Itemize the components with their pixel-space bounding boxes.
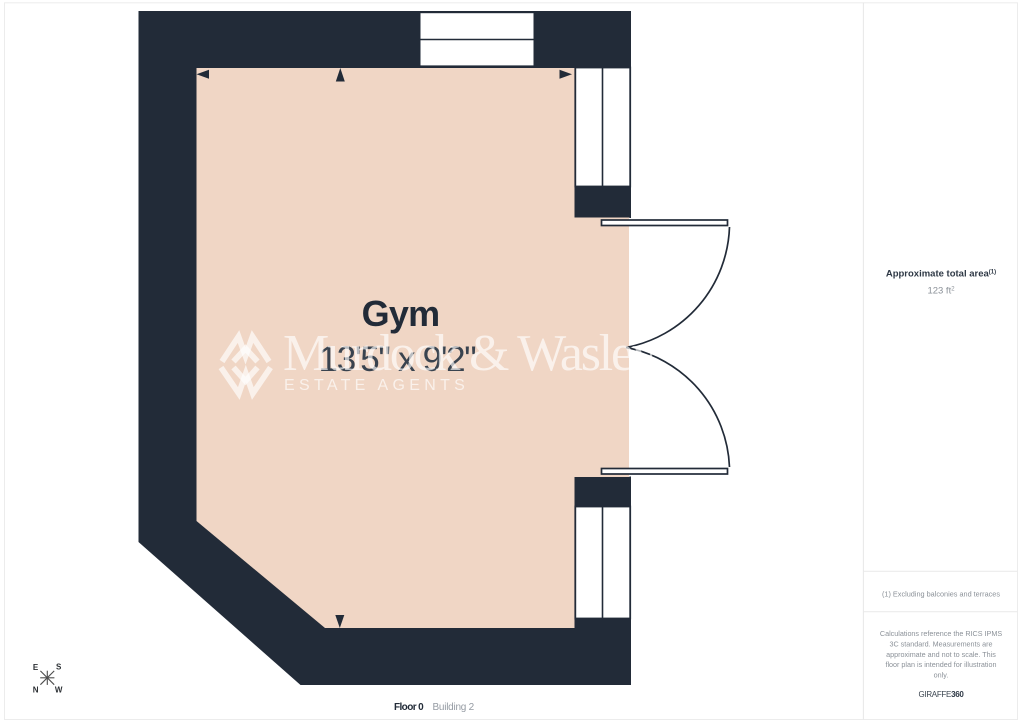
svg-text:E: E [33, 663, 39, 672]
svg-text:ESTATE AGENTS: ESTATE AGENTS [284, 377, 469, 394]
svg-text:3C standard. Measurements are: 3C standard. Measurements are [889, 639, 992, 648]
svg-text:N: N [33, 685, 39, 694]
svg-text:S: S [56, 663, 62, 672]
svg-text:Approximate total area(1): Approximate total area(1) [886, 269, 996, 280]
svg-text:Floor 0: Floor 0 [394, 702, 424, 713]
svg-text:approximate and not to scale.: approximate and not to scale. This [886, 650, 996, 659]
svg-text:123 ft2: 123 ft2 [927, 286, 955, 297]
svg-text:W: W [55, 685, 63, 694]
svg-text:Building 2: Building 2 [433, 702, 475, 713]
svg-text:GIRAFFE360: GIRAFFE360 [918, 690, 964, 699]
svg-text:Murdock & Wasley: Murdock & Wasley [283, 325, 658, 382]
svg-text:only.: only. [934, 671, 949, 680]
svg-text:(1) Excluding balconies and te: (1) Excluding balconies and terraces [882, 590, 1000, 599]
svg-text:floor plan is intended for ill: floor plan is intended for illustration [885, 660, 996, 669]
svg-text:Calculations reference the RIC: Calculations reference the RICS IPMS [880, 629, 1002, 638]
